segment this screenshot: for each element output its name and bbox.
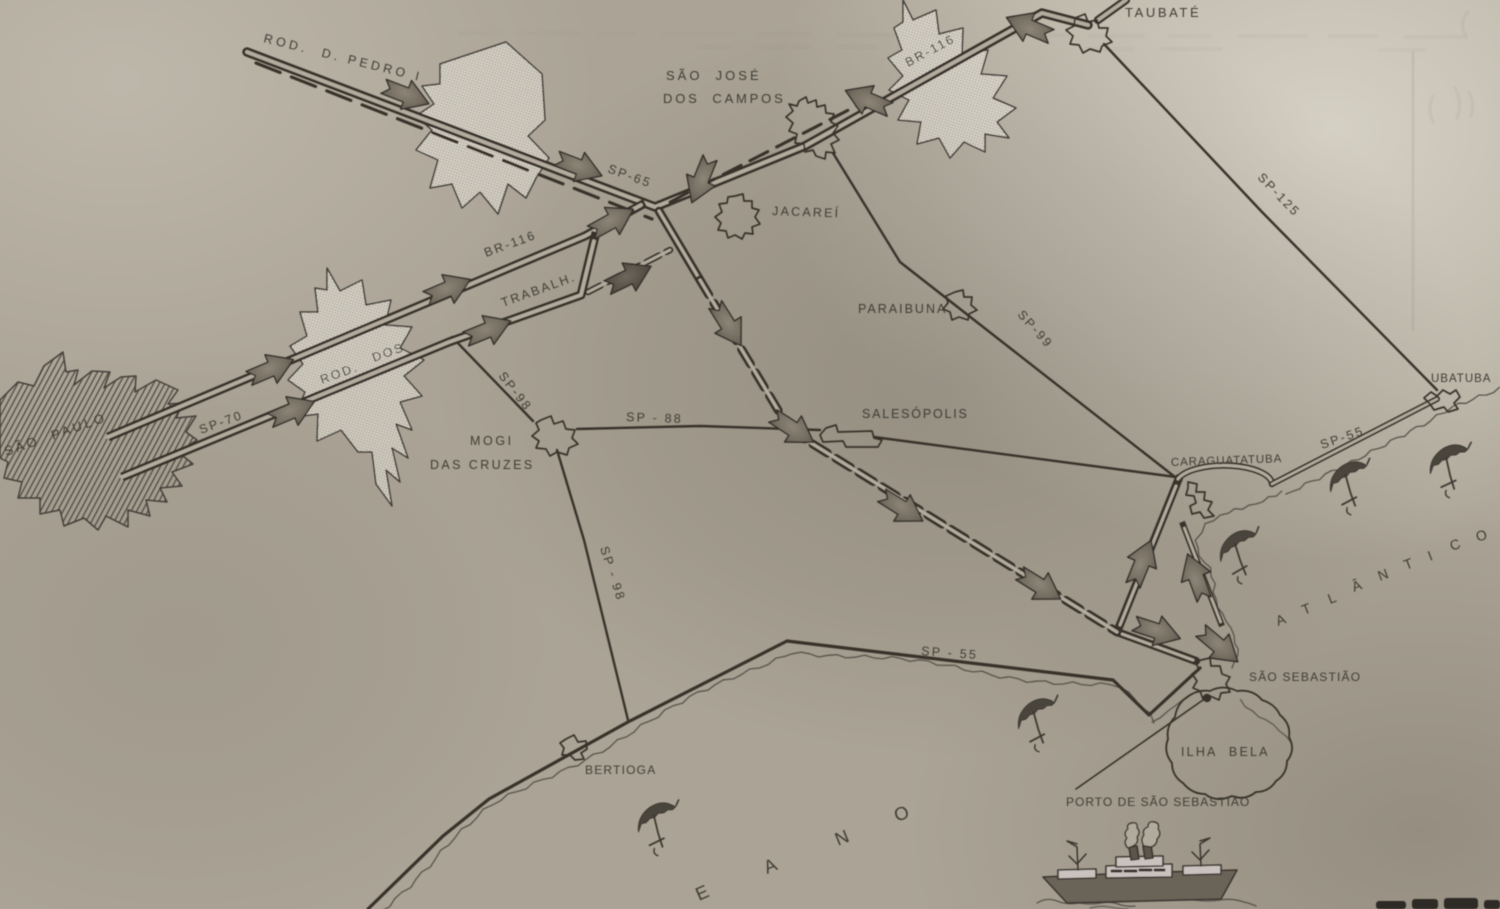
svg-text:BERTIOGA: BERTIOGA: [585, 763, 656, 777]
svg-text:PORTO DE SÃO SEBASTIÃO: PORTO DE SÃO SEBASTIÃO: [1066, 795, 1250, 809]
svg-text:SÃO JOSÉ: SÃO JOSÉ: [666, 68, 762, 83]
svg-text:UBATUBA: UBATUBA: [1431, 373, 1491, 385]
svg-text:SP - 88: SP - 88: [626, 410, 683, 426]
svg-text:MOGI: MOGI: [470, 434, 514, 448]
svg-text:ILHA BELA: ILHA BELA: [1181, 745, 1270, 759]
svg-text:PARAIBUNA: PARAIBUNA: [858, 302, 947, 316]
svg-text:SALESÓPOLIS: SALESÓPOLIS: [862, 406, 969, 421]
svg-text:SÃO SEBASTIÃO: SÃO SEBASTIÃO: [1249, 670, 1361, 684]
svg-text:JACAREÍ: JACAREÍ: [772, 203, 841, 220]
svg-text:DAS CRUZES: DAS CRUZES: [430, 458, 535, 472]
svg-text:TAUBATÉ: TAUBATÉ: [1125, 5, 1201, 20]
svg-text:DOS CAMPOS: DOS CAMPOS: [663, 91, 786, 106]
